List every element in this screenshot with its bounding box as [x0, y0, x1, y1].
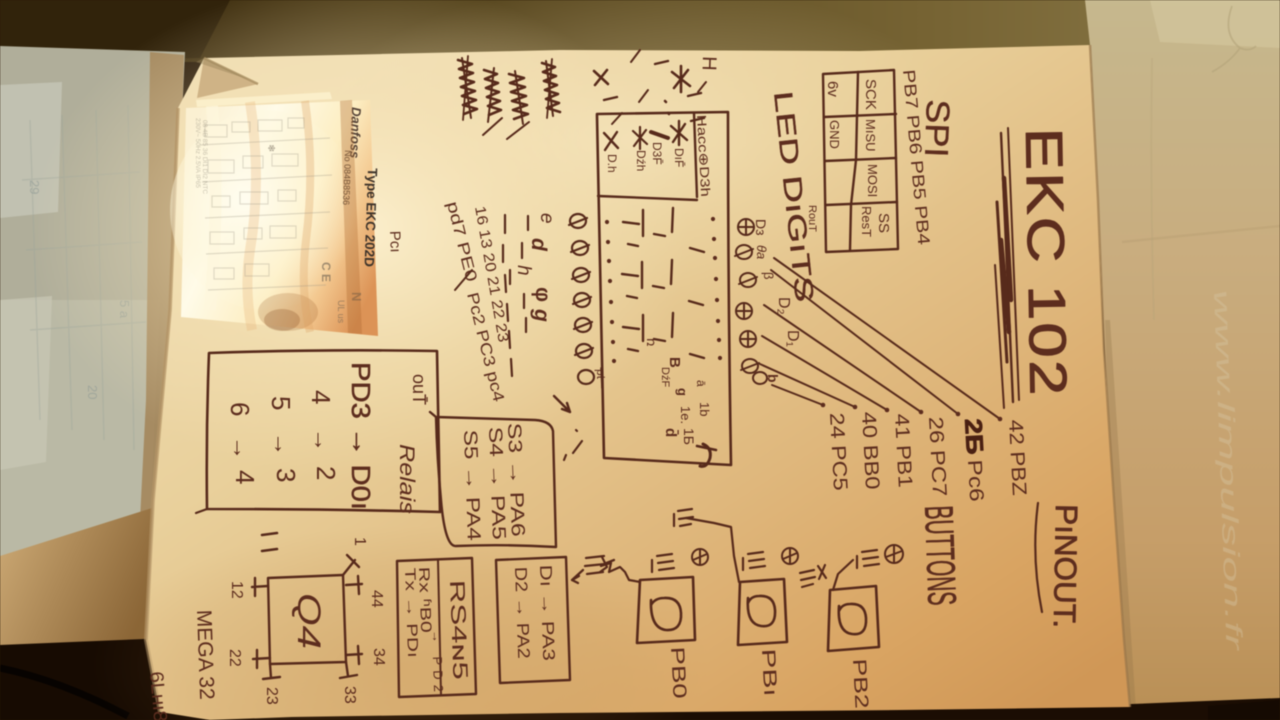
svg-text:22: 22 — [226, 649, 243, 667]
svg-text:MEGA 32: MEGA 32 — [192, 609, 218, 700]
svg-text:→: → — [268, 432, 295, 456]
svg-text:4: 4 — [230, 470, 260, 484]
svg-text:5: 5 — [266, 396, 296, 410]
svg-text:6v: 6v — [824, 81, 841, 97]
svg-text:GND: GND — [827, 120, 842, 149]
svg-text:20: 20 — [85, 385, 100, 399]
svg-text:→: → — [227, 436, 254, 460]
svg-text:d̄: d̄ — [662, 428, 680, 437]
svg-text:23: 23 — [263, 687, 280, 705]
svg-text:ռ: ռ — [644, 338, 659, 346]
svg-text:41 PB1: 41 PB1 — [890, 413, 916, 488]
svg-text:Dı → PA3: Dı → PA3 — [536, 564, 558, 661]
svg-text:1b: 1b — [697, 402, 712, 416]
svg-text:6: 6 — [225, 402, 255, 416]
svg-text:g: g — [530, 308, 553, 322]
svg-text:Tx → PDı: Tx → PDı — [401, 568, 421, 659]
svg-text:PıNOUT.: PıNOUT. — [1047, 504, 1084, 629]
svg-text:44: 44 — [368, 590, 385, 608]
svg-text:S4 → PA5: S4 → PA5 — [484, 426, 509, 540]
svg-text:d: d — [527, 238, 550, 252]
svg-text:D₁: D₁ — [784, 330, 801, 347]
svg-text:b: b — [765, 374, 781, 383]
svg-text:40 BB0: 40 BB0 — [857, 411, 883, 490]
svg-text:12: 12 — [228, 581, 245, 599]
svg-text:MOSI: MOSI — [865, 164, 880, 197]
svg-text:SCK: SCK — [862, 79, 879, 110]
svg-text:Dз: Dз — [753, 219, 769, 236]
svg-text:❄: ❄ — [265, 144, 276, 152]
svg-text:→: → — [308, 428, 335, 452]
svg-text:ā: ā — [694, 380, 708, 387]
svg-text:RS4ɴ5: RS4ɴ5 — [445, 579, 471, 680]
svg-text:SS: SS — [875, 213, 892, 233]
svg-text:26 PC7: 26 PC7 — [924, 416, 950, 497]
svg-text:33: 33 — [341, 686, 358, 704]
svg-text:1: 1 — [351, 537, 368, 546]
svg-text:φ: φ — [531, 287, 554, 302]
svg-text:ouT̄: ouT̄ — [409, 374, 429, 405]
svg-text:BUTTONS: BUTTONS — [916, 505, 963, 606]
svg-text:MıSU: MıSU — [863, 119, 878, 152]
svg-text:D3F̄: D3F̄ — [650, 142, 664, 165]
svg-text:PD3 → D0ı: PD3 → D0ı — [346, 362, 376, 510]
svg-text:Relais: Relais — [395, 444, 418, 515]
svg-text:D2 → PA2: D2 → PA2 — [511, 566, 533, 659]
svg-text:6Lʜı84: 6Lʜı84 — [145, 671, 171, 720]
svg-text:Dźh: Dźh — [634, 150, 648, 171]
svg-text:230V~ 50Hz 2.5VA IP65: 230V~ 50Hz 2.5VA IP65 — [194, 118, 201, 188]
svg-text:D.h: D.h — [605, 154, 619, 173]
svg-text:Pc6: Pc6 — [963, 459, 987, 502]
svg-text:PBı: PBı — [757, 648, 780, 697]
svg-text:DźF: DźF — [659, 367, 671, 387]
svg-text:1e.: 1e. — [678, 406, 693, 424]
svg-text:UL us: UL us — [336, 300, 346, 324]
svg-text:1Б: 1Б — [681, 428, 697, 445]
svg-text:42 PBZ: 42 PBZ — [1004, 419, 1030, 496]
svg-text:H: H — [697, 56, 719, 71]
svg-text:D₂: D₂ — [775, 297, 792, 315]
svg-text:C E: C E — [319, 262, 333, 282]
svg-text:g: g — [675, 388, 690, 396]
svg-text:PB2: PB2 — [848, 658, 872, 709]
svg-text:2Б: 2Б — [959, 418, 988, 455]
svg-text:Pcı: Pcı — [386, 231, 404, 253]
svg-text:24 PC5: 24 PC5 — [825, 412, 851, 491]
svg-text:DıF̄: DıF̄ — [672, 148, 686, 167]
svg-text:34: 34 — [370, 648, 387, 666]
svg-text:EKC 102: EKC 102 — [1014, 127, 1077, 398]
svg-text:θa: θa — [754, 245, 769, 259]
svg-text:3: 3 — [271, 468, 301, 482]
svg-text:h: h — [513, 265, 534, 276]
svg-text:PB0: PB0 — [666, 646, 690, 699]
svg-text:4: 4 — [306, 390, 336, 404]
svg-text:S5 → PA4: S5 → PA4 — [459, 429, 484, 541]
svg-text:ResT: ResT — [859, 206, 874, 237]
svg-text:e: e — [536, 213, 557, 224]
svg-text:2: 2 — [311, 466, 341, 480]
svg-text:Q4: Q4 — [291, 593, 327, 649]
svg-text:08 4B 85 36 DI1 DI2 NTC: 08 4B 85 36 DI1 DI2 NTC — [201, 120, 208, 194]
